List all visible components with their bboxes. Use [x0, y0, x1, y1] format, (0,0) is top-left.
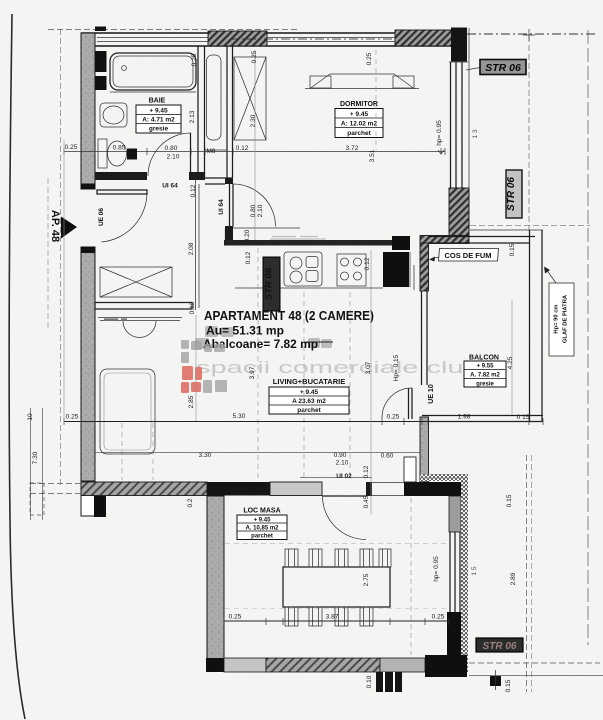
- svg-text:0.12: 0.12: [236, 145, 249, 152]
- svg-text:LIVING+BUCATARIE: LIVING+BUCATARIE: [273, 377, 345, 386]
- svg-text:0.25: 0.25: [432, 614, 445, 621]
- svg-text:0.25: 0.25: [229, 614, 242, 621]
- svg-text:7.30: 7.30: [32, 451, 39, 464]
- svg-text:+ 9.45: + 9.45: [350, 111, 369, 118]
- svg-text:2.08: 2.08: [188, 242, 195, 255]
- svg-text:UE 10: UE 10: [428, 384, 435, 404]
- svg-text:gresie: gresie: [149, 126, 169, 133]
- svg-text:4.25: 4.25: [507, 356, 514, 369]
- svg-text:3.51: 3.51: [369, 149, 376, 162]
- svg-text:A. 7.82 m2: A. 7.82 m2: [470, 373, 500, 379]
- svg-text:2.10: 2.10: [167, 154, 180, 161]
- svg-text:2.85: 2.85: [188, 395, 195, 408]
- svg-text:DORMITOR: DORMITOR: [340, 101, 378, 108]
- svg-text:A: 4.71 m2: A: 4.71 m2: [142, 117, 175, 124]
- svg-text:STR 06: STR 06: [506, 177, 517, 211]
- svg-text:0.25: 0.25: [66, 414, 79, 421]
- svg-text:LOC MASA: LOC MASA: [243, 508, 280, 515]
- svg-text:Au= 51.31 mp: Au= 51.31 mp: [206, 324, 284, 338]
- svg-text:Hp= 90 cm: Hp= 90 cm: [554, 304, 560, 333]
- svg-text:0.15: 0.15: [506, 494, 513, 507]
- svg-text:0.45: 0.45: [363, 495, 370, 508]
- svg-text:0.80: 0.80: [165, 145, 178, 152]
- svg-text:parchet: parchet: [347, 130, 371, 137]
- svg-text:0.12: 0.12: [189, 301, 196, 314]
- svg-text:+ 9.45: + 9.45: [149, 108, 168, 115]
- svg-text:+ 9.45: + 9.45: [300, 389, 319, 396]
- svg-text:0.25: 0.25: [366, 52, 373, 65]
- svg-text:0.20: 0.20: [244, 229, 251, 242]
- svg-text:3.07: 3.07: [365, 361, 372, 374]
- svg-text:0.25: 0.25: [191, 53, 198, 66]
- svg-text:A. 10,85 m2: A. 10,85 m2: [245, 526, 279, 532]
- svg-text:3.87: 3.87: [326, 614, 339, 621]
- svg-text:parchet: parchet: [251, 534, 273, 540]
- svg-text:2.89: 2.89: [510, 572, 517, 585]
- svg-text:AP. 48: AP. 48: [49, 210, 61, 242]
- svg-text:A 23.63 m2: A 23.63 m2: [292, 398, 326, 405]
- svg-text:hp= 0.95: hp= 0.95: [433, 556, 440, 582]
- svg-text:0.25: 0.25: [387, 414, 400, 421]
- svg-text:3.97: 3.97: [249, 366, 256, 379]
- svg-text:UI 64: UI 64: [162, 183, 178, 190]
- svg-text:0.12: 0.12: [363, 465, 370, 478]
- svg-text:10: 10: [27, 413, 34, 421]
- svg-text:1.98: 1.98: [458, 414, 471, 421]
- svg-text:GLAF DE PIATRA: GLAF DE PIATRA: [563, 294, 569, 343]
- svg-text:2.75: 2.75: [363, 573, 370, 586]
- svg-text:+ 9.45: + 9.45: [254, 518, 272, 524]
- svg-text:0 15: 0 15: [517, 414, 530, 421]
- svg-text:UE 06: UE 06: [98, 208, 105, 226]
- svg-text:UI 02: UI 02: [336, 473, 352, 480]
- svg-text:1 5: 1 5: [471, 566, 478, 575]
- svg-text:2.30: 2.30: [250, 114, 257, 127]
- svg-text:STR 06: STR 06: [264, 267, 275, 300]
- svg-text:0.15: 0.15: [509, 243, 516, 256]
- svg-text:M6: M6: [206, 148, 215, 155]
- svg-text:0.2: 0.2: [187, 498, 194, 507]
- svg-text:0.90: 0.90: [334, 452, 347, 459]
- svg-text:STR 06: STR 06: [485, 62, 521, 74]
- svg-text:0.25: 0.25: [65, 144, 78, 151]
- svg-text:1 3: 1 3: [472, 129, 479, 138]
- svg-text:0.60: 0.60: [381, 453, 394, 460]
- svg-text:2.10: 2.10: [336, 460, 349, 467]
- svg-text:COS DE FUM: COS DE FUM: [444, 251, 491, 260]
- svg-text:gresie: gresie: [476, 382, 494, 388]
- svg-text:5.30: 5.30: [233, 413, 246, 420]
- svg-text:Hp= 0.15: Hp= 0.15: [393, 354, 400, 381]
- svg-text:hp= 0.95: hp= 0.95: [436, 120, 443, 146]
- svg-text:0.85: 0.85: [113, 145, 126, 152]
- svg-text:0.25: 0.25: [251, 50, 258, 63]
- svg-text:0.12: 0.12: [364, 257, 371, 270]
- svg-text:STR 06: STR 06: [483, 641, 517, 652]
- svg-text:APARTAMENT 48 (2 CAMERE): APARTAMENT 48 (2 CAMERE): [204, 308, 374, 323]
- svg-text:0.12: 0.12: [245, 251, 252, 264]
- svg-text:parchet: parchet: [297, 407, 321, 414]
- svg-text:0.12: 0.12: [190, 184, 197, 197]
- svg-text:3.30: 3.30: [199, 452, 212, 459]
- svg-text:0.10: 0.10: [366, 675, 373, 688]
- svg-text:UI 64: UI 64: [218, 199, 225, 215]
- svg-text:2.10: 2.10: [257, 204, 264, 217]
- svg-text:0.15: 0.15: [505, 679, 512, 692]
- svg-text:2.13: 2.13: [189, 110, 196, 123]
- svg-text:spacii comerciale cluj: spacii comerciale cluj: [196, 359, 470, 377]
- svg-text:3.72: 3.72: [346, 145, 359, 152]
- svg-text:+ 9.55: + 9.55: [477, 364, 495, 370]
- svg-text:0.80: 0.80: [250, 204, 257, 217]
- svg-text:BALCON: BALCON: [469, 355, 499, 362]
- svg-text:BAIE: BAIE: [149, 98, 166, 105]
- svg-text:A: 12.02 m2: A: 12.02 m2: [341, 121, 378, 128]
